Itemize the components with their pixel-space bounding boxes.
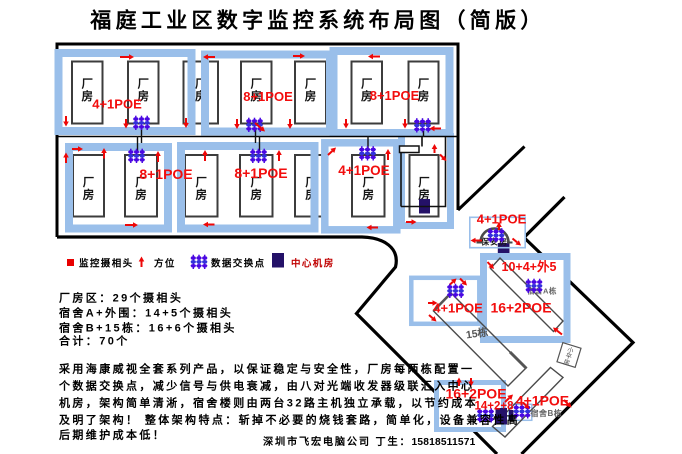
- svg-text:房: 房: [418, 89, 430, 103]
- svg-text:中心机房: 中心机房: [291, 258, 335, 270]
- svg-text:房: 房: [305, 89, 317, 103]
- svg-text:后期维护成本低！: 后期维护成本低！: [59, 428, 166, 442]
- svg-text:采用海康威视全套系列产品，以保证稳定与安全性，厂房每两栋配置: 采用海康威视全套系列产品，以保证稳定与安全性，厂房每两栋配置一: [58, 362, 474, 376]
- svg-text:厂: 厂: [418, 176, 430, 189]
- svg-text:厂: 厂: [82, 78, 94, 91]
- svg-text:厂: 厂: [418, 78, 430, 91]
- svg-text:4+1POE: 4+1POE: [477, 212, 527, 227]
- svg-text:深圳市飞宏电脑公司 丁生：15818511571: 深圳市飞宏电脑公司 丁生：15818511571: [263, 435, 476, 448]
- svg-text:数据交换点: 数据交换点: [210, 258, 266, 270]
- svg-text:厂: 厂: [196, 176, 208, 189]
- svg-text:宿舍A+外围：14+5个摄相头: 宿舍A+外围：14+5个摄相头: [59, 306, 233, 320]
- svg-text:8+1POE: 8+1POE: [370, 88, 420, 103]
- svg-text:厂房区：29个摄相头: 厂房区：29个摄相头: [59, 291, 183, 305]
- svg-text:个数据交换点，减少信号与供电衰减，由八对光端收发器级联汇入中: 个数据交换点，减少信号与供电衰减，由八对光端收发器级联汇入中心: [58, 379, 474, 393]
- svg-text:16+2POE: 16+2POE: [490, 300, 551, 316]
- svg-text:宿舍B+15栋：16+6个摄相头: 宿舍B+15栋：16+6个摄相头: [59, 321, 237, 335]
- svg-text:14+2+8: 14+2+8: [474, 401, 514, 413]
- svg-text:房: 房: [196, 188, 208, 202]
- svg-text:4+1POE: 4+1POE: [338, 163, 389, 178]
- svg-text:房: 房: [363, 188, 375, 202]
- svg-text:厂: 厂: [305, 78, 317, 91]
- svg-text:8+1POE: 8+1POE: [139, 166, 192, 182]
- svg-text:4+1POE: 4+1POE: [433, 301, 483, 316]
- svg-text:4+1POE: 4+1POE: [92, 97, 142, 112]
- svg-text:厂: 厂: [83, 176, 95, 189]
- svg-text:福庭工业区数字监控系统布局图（简版）: 福庭工业区数字监控系统布局图（简版）: [89, 9, 545, 33]
- svg-text:厂: 厂: [138, 78, 150, 91]
- svg-text:合计：70个: 合计：70个: [59, 334, 130, 348]
- svg-text:机房，架构简单清淅，宿舍楼则由两台32路主机独立承载，以节约: 机房，架构简单清淅，宿舍楼则由两台32路主机独立承载，以节约成本: [59, 396, 478, 410]
- svg-text:8+1POE: 8+1POE: [234, 165, 287, 181]
- svg-text:房: 房: [251, 188, 263, 202]
- svg-text:监控摄相头: 监控摄相头: [79, 258, 134, 270]
- svg-text:8+1POE: 8+1POE: [243, 89, 293, 104]
- svg-text:方位: 方位: [154, 258, 176, 270]
- svg-text:房: 房: [83, 188, 95, 202]
- svg-text:保安房: 保安房: [480, 237, 508, 247]
- svg-text:宿舍B栋: 宿舍B栋: [531, 408, 563, 418]
- svg-text:及明了架构！ 整体架构特点：斩掉不必要的烧钱套路，简单化，设: 及明了架构！ 整体架构特点：斩掉不必要的烧钱套路，简单化，设备兼容性高: [59, 413, 520, 427]
- svg-text:4+1POE: 4+1POE: [516, 393, 569, 409]
- svg-text:10+4+外5: 10+4+外5: [502, 259, 557, 274]
- svg-text:房: 房: [135, 188, 147, 202]
